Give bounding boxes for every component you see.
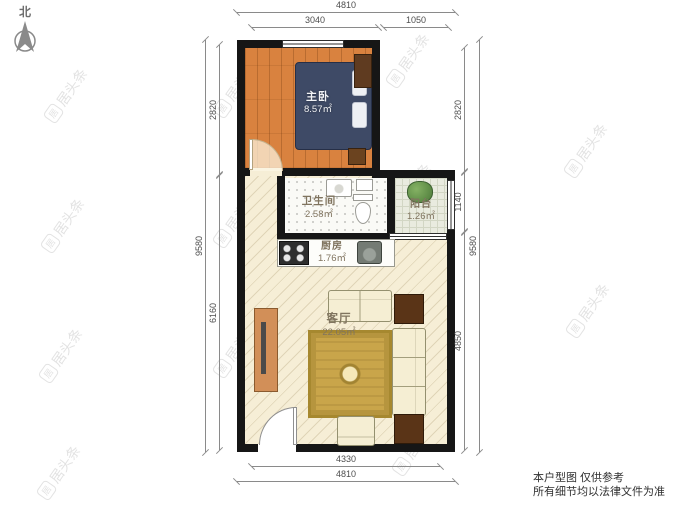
dimension-bottom-inner: 4330 [252, 466, 440, 467]
dimension-bottom-outer: 4810 [237, 481, 455, 482]
watermark: 居居头条 [38, 194, 89, 255]
bathroom-area: 2.58㎡ [288, 209, 350, 221]
side-table [394, 414, 424, 444]
wall-left [237, 40, 245, 452]
wardrobe [354, 54, 372, 88]
dimension-value: 6160 [208, 302, 218, 322]
watermark: 居居头条 [34, 441, 85, 502]
watermark-logo-icon: 居 [37, 362, 59, 384]
living-room-name: 客厅 [300, 312, 378, 327]
watermark-logo-icon: 居 [42, 102, 64, 124]
watermark-logo-icon: 居 [384, 67, 406, 89]
dimension-value: 2820 [208, 100, 218, 120]
dimension-value: 2820 [453, 100, 463, 120]
north-indicator: 北 [7, 3, 43, 61]
tv-console [254, 308, 278, 392]
window-bedroom [282, 40, 344, 48]
dimension-top-outer: 4810 [237, 12, 455, 13]
watermark: 居居头条 [563, 279, 614, 340]
window-balcony-living [389, 233, 447, 240]
dimension-value: 1050 [406, 15, 426, 25]
sofa-three-seat [392, 328, 426, 416]
balcony-area: 1.26㎡ [394, 211, 448, 223]
watermark: 居居头条 [41, 64, 92, 125]
floor-plan-page: 居居头条 居居头条 居居头条 居居头条 居居头条 居居头条 居居头条 居居头条 … [0, 0, 680, 510]
dimension-top-left: 3040 [252, 27, 378, 28]
entrance-door-opening [258, 444, 296, 452]
living-room-label: 客厅 22.05㎡ [300, 312, 378, 339]
bed-pillow [352, 102, 367, 128]
watermark-logo-icon: 居 [562, 157, 584, 179]
dimension-value: 9580 [468, 236, 478, 256]
bedroom-area: 8.57㎡ [283, 104, 353, 116]
nightstand [348, 148, 366, 165]
dimension-value: 4330 [336, 454, 356, 464]
kitchen-name: 厨房 [306, 240, 358, 253]
dimension-value: 3040 [305, 15, 325, 25]
kitchen-area: 1.76㎡ [306, 253, 358, 265]
watermark-text: 居头条 [47, 324, 87, 370]
watermark-text: 居头条 [394, 29, 434, 75]
toilet-tank [353, 194, 373, 201]
dimension-right-middle: 1140 [464, 172, 465, 232]
watermark: 居居头条 [561, 119, 612, 180]
watermark-text: 居头条 [52, 64, 92, 110]
bedroom-name: 主卧 [283, 90, 353, 104]
bedroom-label: 主卧 8.57㎡ [283, 90, 353, 117]
dimension-value: 9580 [194, 236, 204, 256]
dimension-left-top: 2820 [219, 45, 220, 175]
rug [308, 330, 392, 418]
entrance-door-leaf [293, 407, 297, 445]
bathroom-label: 卫生间 2.58㎡ [288, 195, 350, 221]
washing-machine [356, 179, 373, 191]
watermark-text: 居头条 [49, 194, 89, 240]
watermark-logo-icon: 居 [564, 317, 586, 339]
wall-bathroom-left [277, 176, 285, 238]
bathroom-name: 卫生间 [288, 195, 350, 209]
watermark-text: 居头条 [45, 441, 85, 487]
watermark-text: 居头条 [572, 119, 612, 165]
dimension-left-bottom: 6160 [219, 175, 220, 450]
watermark-logo-icon: 居 [35, 479, 57, 501]
wall-balcony-top [372, 170, 455, 178]
dimension-value: 4810 [336, 0, 356, 10]
watermark-logo-icon: 居 [211, 357, 233, 379]
dimension-right-top: 2820 [464, 48, 465, 172]
stove [279, 241, 309, 265]
compass-arrow-icon [11, 20, 39, 56]
dimension-top-right: 1050 [384, 27, 448, 28]
wall-bedroom-right [372, 40, 380, 178]
watermark: 居居头条 [36, 324, 87, 385]
dimension-right-bottom: 4850 [464, 232, 465, 450]
kitchen-sink [357, 241, 382, 264]
kitchen-label: 厨房 1.76㎡ [306, 240, 358, 265]
disclaimer-line2: 所有细节均以法律文件为准 [533, 485, 665, 499]
watermark-text: 居头条 [574, 279, 614, 325]
watermark: 居居头条 [383, 29, 434, 90]
dimension-value: 1140 [453, 192, 463, 211]
living-room-area: 22.05㎡ [300, 327, 378, 339]
watermark-logo-icon: 居 [39, 232, 61, 254]
tv [261, 322, 266, 374]
balcony-name: 阳台 [394, 198, 448, 211]
dimension-value: 4850 [453, 331, 463, 351]
disclaimer-line1: 本户型图 仅供参考 [533, 471, 665, 485]
dimension-left-outer: 9580 [205, 40, 206, 452]
north-label: 北 [7, 3, 43, 20]
dimension-value: 4810 [336, 469, 356, 479]
balcony-label: 阳台 1.26㎡ [394, 198, 448, 223]
watermark-logo-icon: 居 [211, 227, 233, 249]
side-table [394, 294, 424, 324]
armchair [337, 416, 375, 446]
dimension-right-outer: 9580 [479, 40, 480, 452]
bedroom-door-leaf [249, 139, 253, 170]
disclaimer: 本户型图 仅供参考 所有细节均以法律文件为准 [533, 471, 665, 499]
